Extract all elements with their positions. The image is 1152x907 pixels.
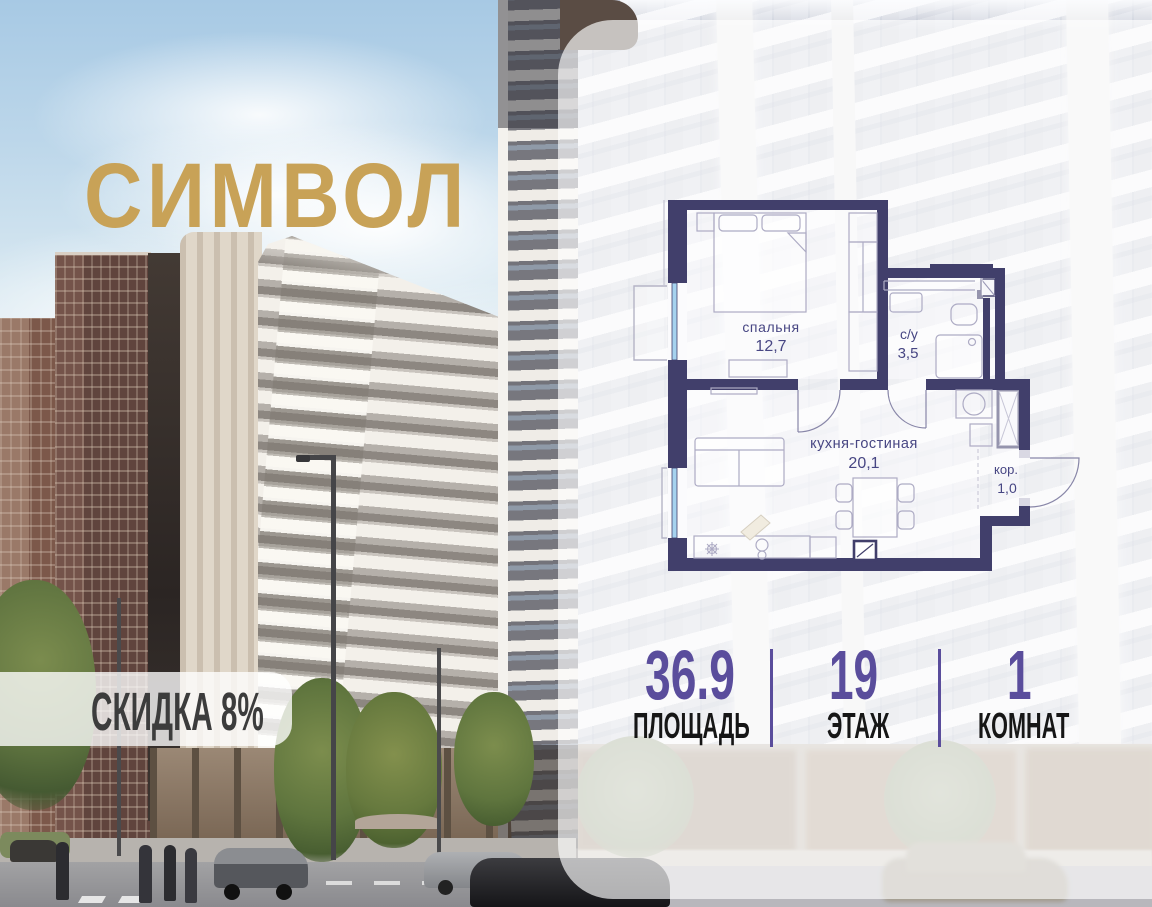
svg-text:спальня: спальня (742, 319, 799, 335)
svg-text:кор.: кор. (994, 462, 1018, 477)
svg-text:кухня-гостиная: кухня-гостиная (810, 436, 918, 452)
svg-text:12,7: 12,7 (755, 338, 786, 355)
svg-text:1,0: 1,0 (997, 480, 1017, 496)
svg-text:с/у: с/у (900, 326, 918, 342)
svg-text:3,5: 3,5 (898, 345, 919, 362)
svg-text:20,1: 20,1 (848, 455, 879, 472)
